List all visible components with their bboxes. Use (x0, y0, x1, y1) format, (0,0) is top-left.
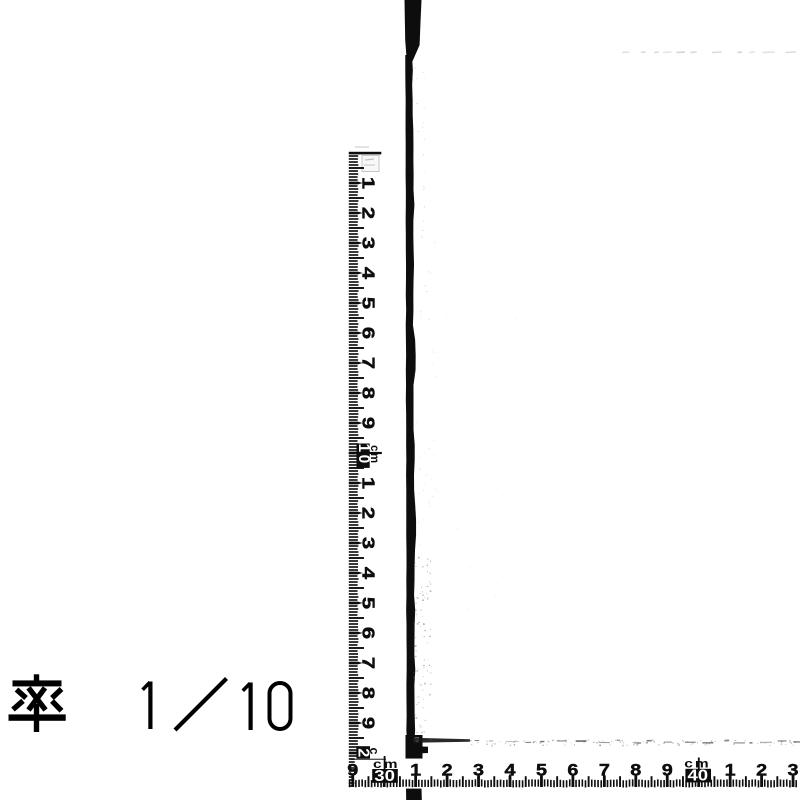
svg-text:5: 5 (358, 597, 378, 609)
svg-text:cm: cm (368, 445, 380, 465)
svg-text:6: 6 (358, 327, 378, 339)
svg-text:1: 1 (410, 761, 421, 779)
svg-text:5: 5 (536, 761, 547, 779)
svg-text:8: 8 (358, 687, 378, 699)
svg-text:3: 3 (788, 761, 799, 779)
svg-text:4: 4 (504, 761, 516, 779)
svg-text:cm: cm (684, 757, 710, 770)
svg-text:2: 2 (442, 761, 453, 779)
svg-text:3: 3 (473, 761, 484, 779)
svg-text:9: 9 (358, 417, 378, 429)
svg-text:5: 5 (358, 297, 378, 309)
svg-text:4: 4 (358, 267, 378, 280)
svg-text:9: 9 (358, 717, 378, 729)
svg-text:7: 7 (358, 357, 378, 369)
svg-text:1: 1 (358, 477, 378, 489)
svg-text:c: c (367, 748, 381, 755)
svg-text:8: 8 (630, 761, 641, 779)
svg-text:1: 1 (725, 761, 736, 779)
svg-text:2: 2 (358, 507, 378, 519)
svg-text:4: 4 (358, 567, 378, 580)
svg-text:7: 7 (599, 761, 610, 779)
svg-text:6: 6 (358, 627, 378, 639)
svg-text:3: 3 (358, 537, 378, 549)
svg-text:2: 2 (358, 207, 378, 219)
svg-text:7: 7 (358, 657, 378, 669)
svg-text:8: 8 (358, 387, 378, 399)
svg-text:1: 1 (358, 177, 378, 189)
svg-text:9: 9 (662, 761, 673, 779)
svg-text:cm: cm (373, 758, 399, 771)
svg-text:2: 2 (756, 761, 767, 779)
svg-text:6: 6 (567, 761, 578, 779)
svg-text:3: 3 (358, 237, 378, 249)
